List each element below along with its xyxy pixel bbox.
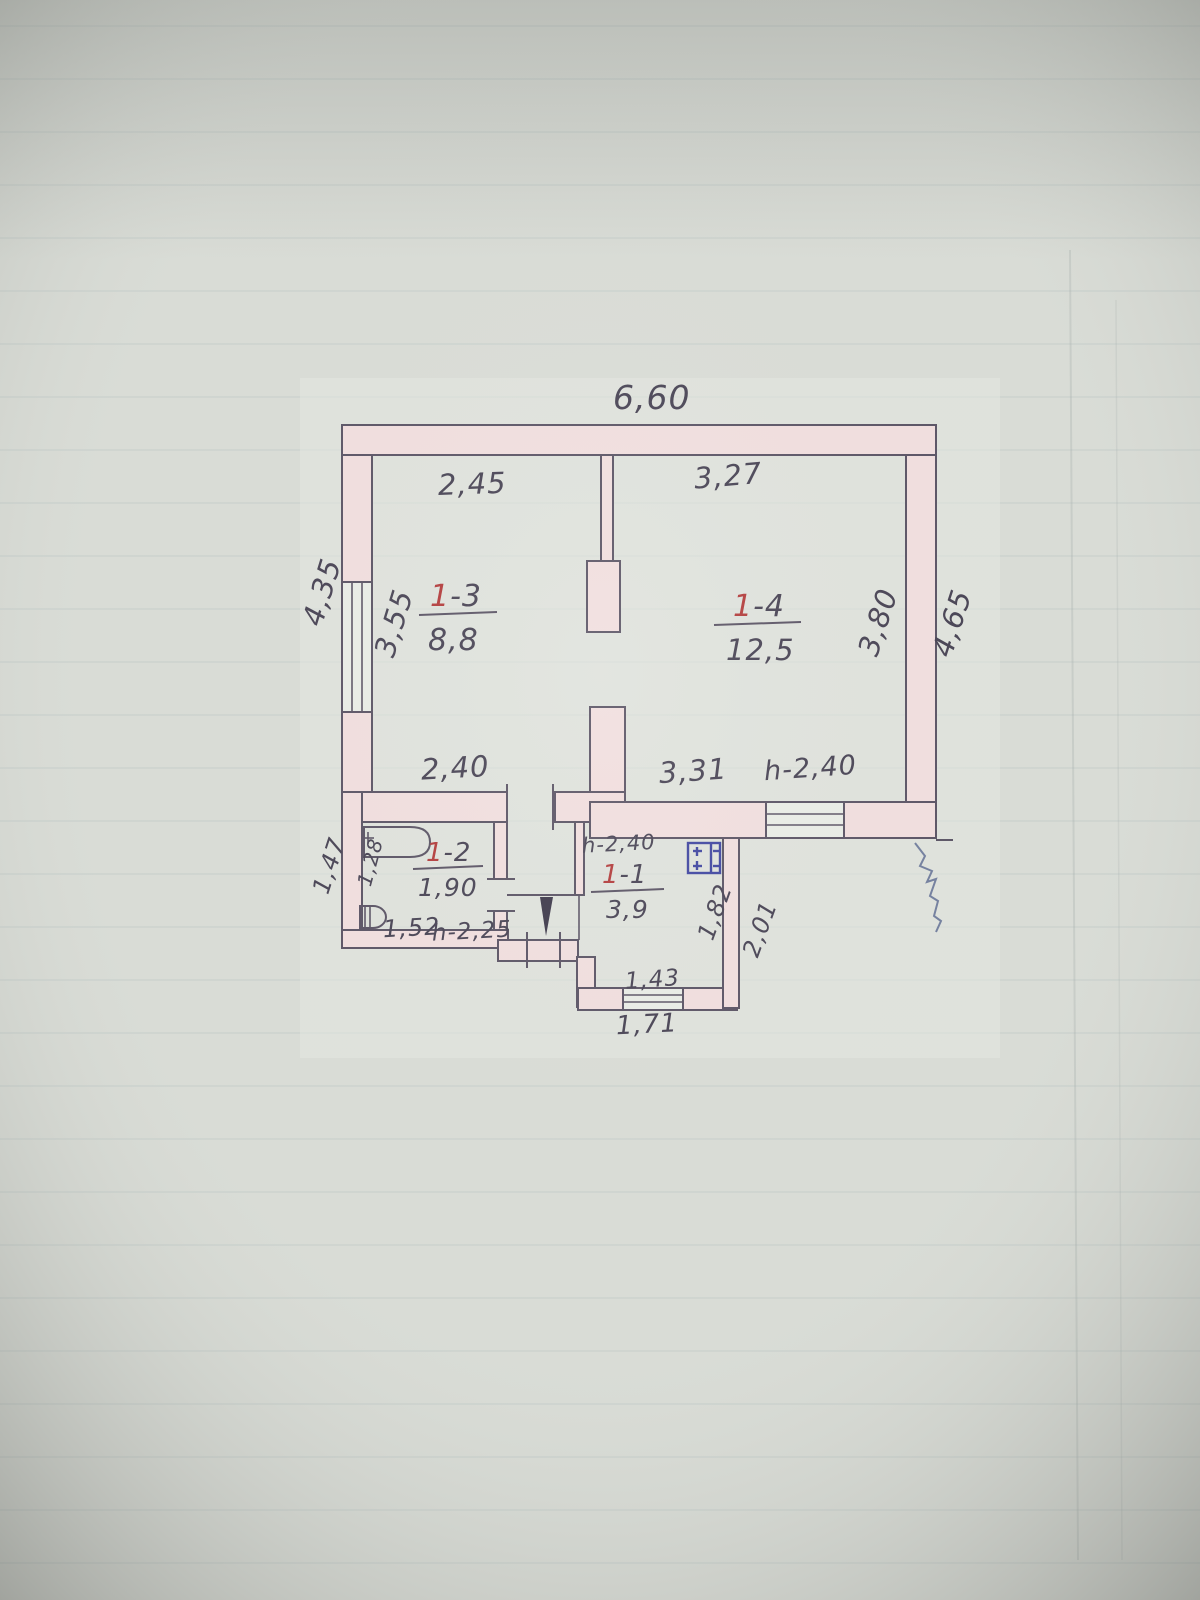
floor-plan-svg: 6,60 2,45 3,27 4,35 3,55 3,80 4,65 2,40 … [0,0,1200,1600]
photo-vignette [0,0,1200,1600]
photographed-floor-plan-page: 6,60 2,45 3,27 4,35 3,55 3,80 4,65 2,40 … [0,0,1200,1600]
